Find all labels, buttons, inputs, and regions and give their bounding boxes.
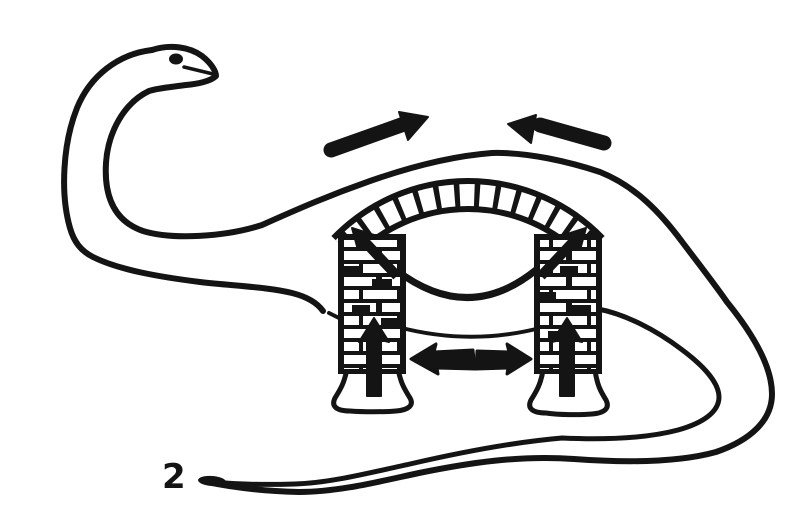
sauropod-bridge-figure: 2 [0,0,800,529]
lower-belly-line [398,327,540,337]
figure-number-label: 2 [162,457,186,497]
figure-page: 2 [0,0,800,529]
mid-left-thrust-arrow [411,344,475,374]
neck-chest-line [64,50,323,311]
mid-right-thrust-arrow [476,344,531,374]
top-left-compression-arrow [331,112,428,150]
eye-dot [169,54,183,65]
top-right-compression-arrow [508,115,604,143]
sauropod-outline [64,47,772,492]
head-back-tail-line [106,47,772,492]
suspension-arc [396,270,536,298]
mouth-line [184,67,213,74]
